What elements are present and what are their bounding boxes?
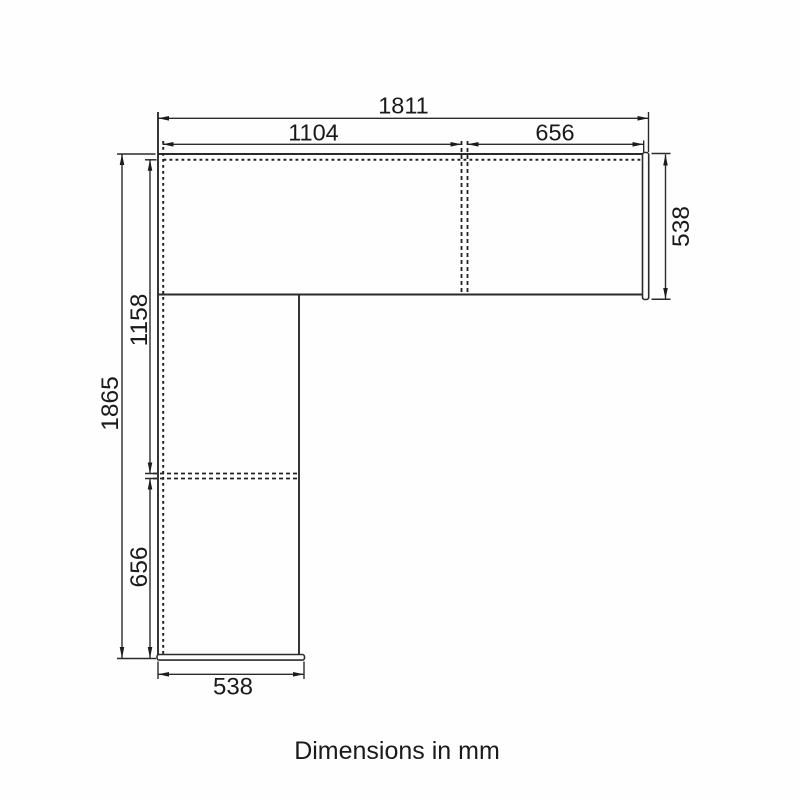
svg-text:1865: 1865	[97, 376, 124, 431]
svg-text:1811: 1811	[378, 93, 429, 119]
svg-text:656: 656	[535, 120, 574, 146]
svg-text:Dimensions in mm: Dimensions in mm	[294, 737, 500, 765]
svg-text:538: 538	[213, 674, 253, 701]
svg-text:1104: 1104	[288, 120, 339, 146]
svg-text:538: 538	[668, 206, 695, 247]
svg-text:1158: 1158	[126, 294, 153, 347]
svg-text:656: 656	[126, 547, 153, 588]
